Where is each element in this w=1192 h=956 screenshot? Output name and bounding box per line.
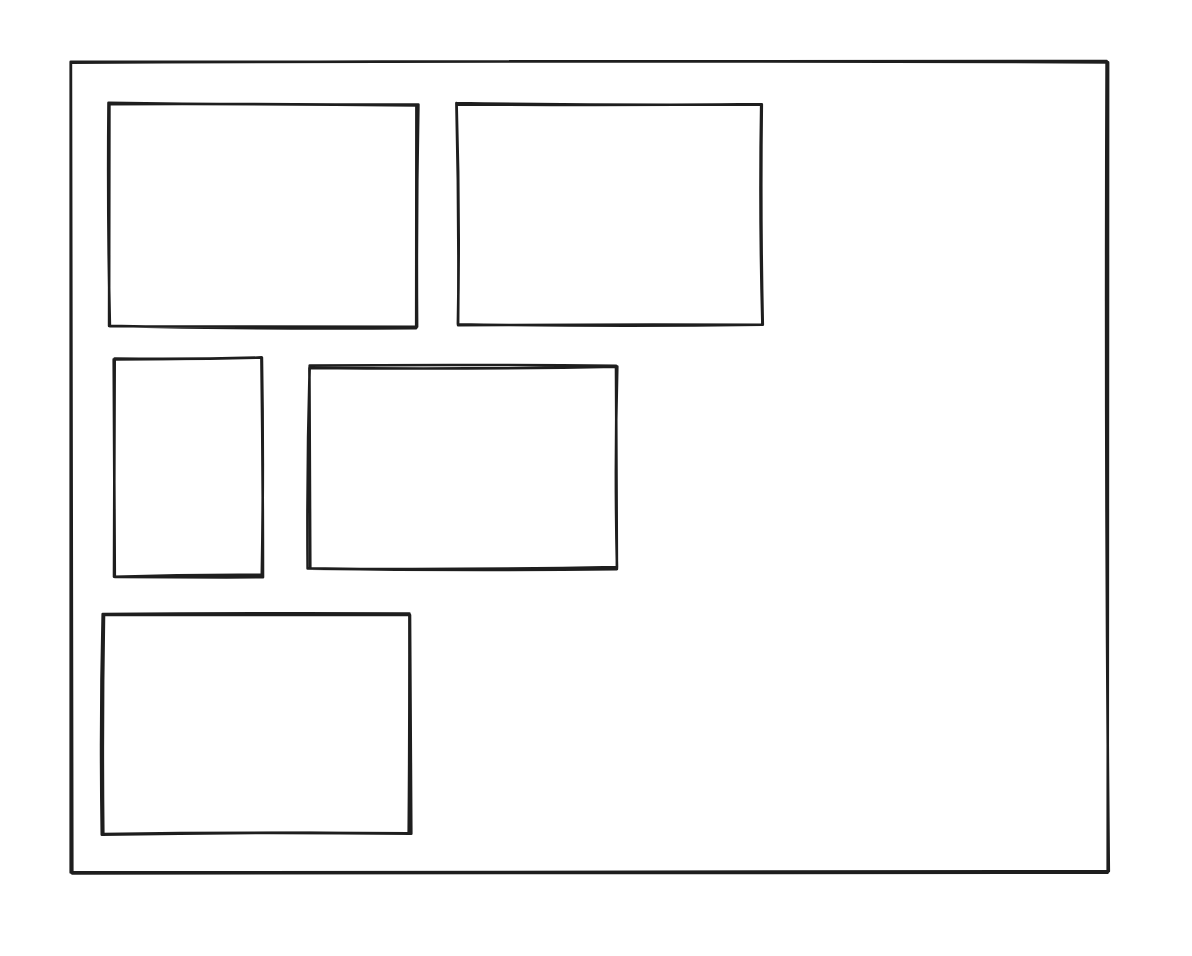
panel-top-left	[108, 103, 418, 329]
sketch-canvas	[0, 0, 1192, 956]
drawing-page	[0, 0, 1192, 956]
panel-middle-left	[114, 358, 263, 578]
panel-middle-right	[307, 365, 617, 570]
panel-bottom-left	[101, 613, 411, 835]
panel-top-right	[456, 103, 762, 326]
outer-frame	[71, 61, 1109, 874]
